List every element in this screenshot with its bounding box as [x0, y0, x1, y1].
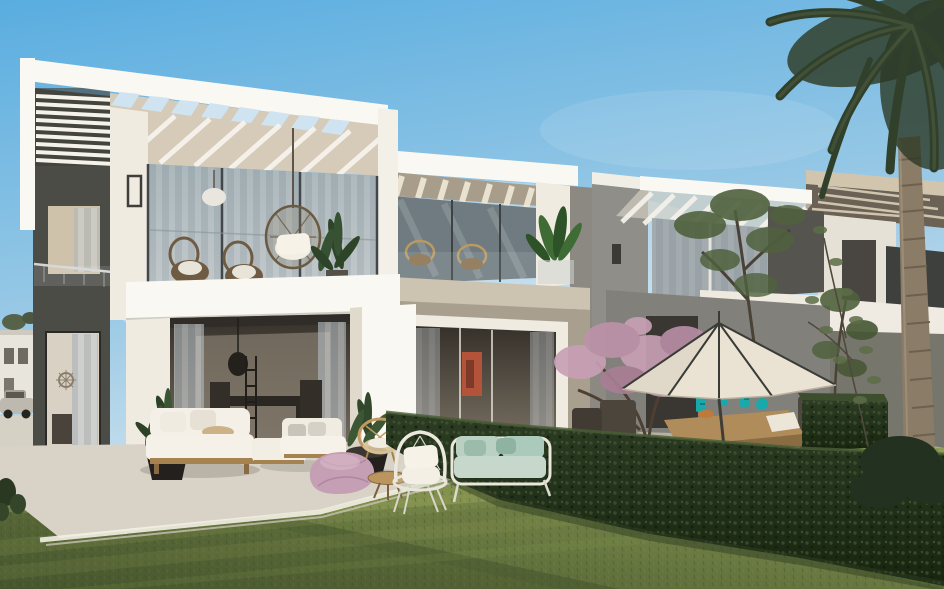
louver-slats: [36, 96, 114, 164]
bowl: [698, 410, 714, 418]
sofa-b: [280, 418, 346, 458]
villa-exterior-render: [0, 0, 944, 589]
wall-lamp-icon: [612, 244, 621, 264]
cloud: [540, 90, 840, 170]
pendant-lamp-icon: [202, 188, 226, 206]
pillow: [403, 444, 439, 469]
entrance-door: [46, 332, 100, 458]
pergola-post: [20, 58, 35, 230]
beanbag: [310, 452, 374, 494]
